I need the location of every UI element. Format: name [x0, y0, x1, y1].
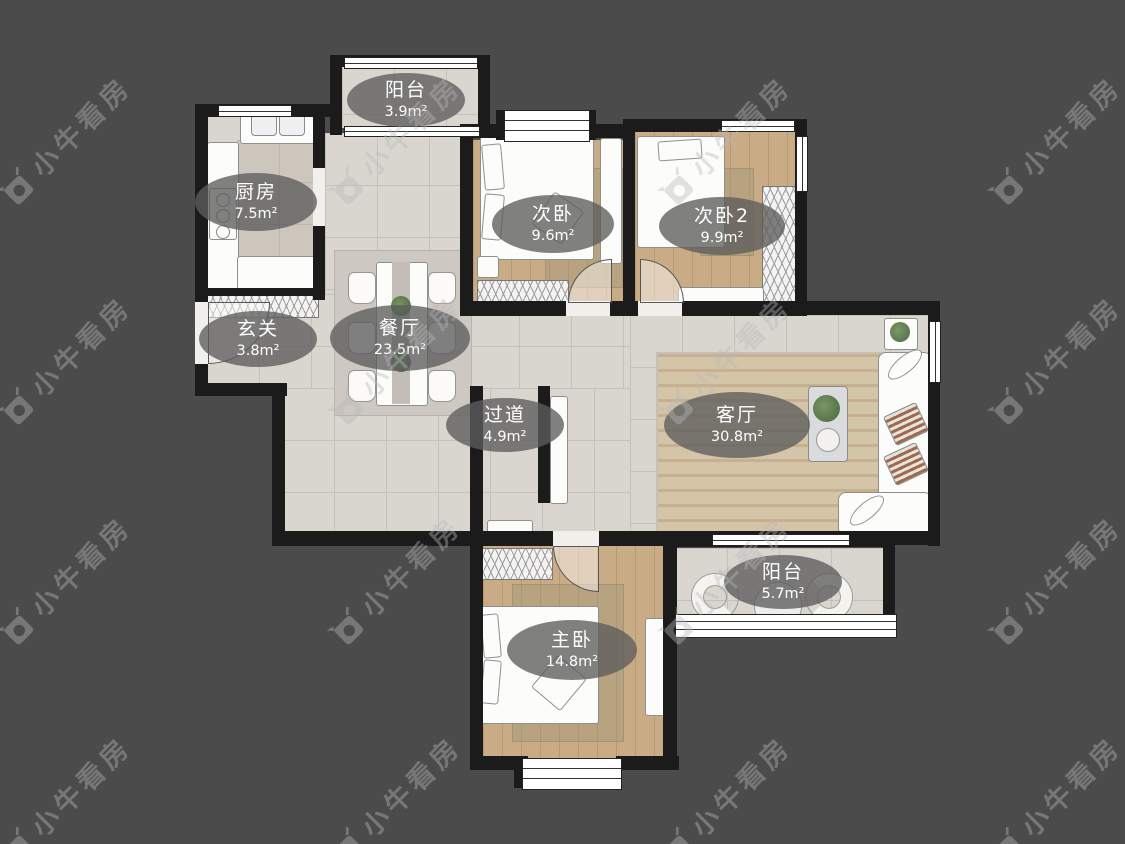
bull-camera-icon	[983, 824, 1031, 844]
room-label-entry: 玄关3.8m²	[199, 311, 317, 367]
watermark: 小牛看房	[0, 66, 139, 214]
bedroom3-pillow	[657, 138, 702, 161]
window-balcony-top	[344, 57, 478, 69]
wall	[663, 531, 677, 770]
room-label-living: 客厅30.8m²	[664, 392, 810, 458]
watermark: 小牛看房	[981, 66, 1125, 214]
bay-window-master	[522, 758, 622, 790]
living-plant	[890, 322, 910, 342]
watermark: 小牛看房	[981, 506, 1125, 654]
room-label-balcony-bottom: 阳台5.7m²	[724, 555, 842, 609]
watermark: 小牛看房	[321, 726, 469, 844]
bull-camera-icon	[983, 384, 1031, 432]
window-bedroom3	[721, 120, 795, 132]
floorplan-canvas: 阳台3.9m² 厨房7.5m² 次卧9.6m² 次卧29.9m² 玄关3.8m²…	[0, 0, 1125, 844]
master-door-opening	[553, 531, 599, 546]
window-cap	[496, 110, 504, 140]
room-label-kitchen: 厨房7.5m²	[195, 173, 317, 231]
dining-chair	[428, 370, 456, 402]
bedroom2-door-opening	[566, 301, 610, 316]
master-wardrobe	[477, 548, 553, 580]
room-label-balcony-top: 阳台3.9m²	[347, 73, 465, 127]
wall	[195, 288, 325, 296]
window-bedroom3-right	[796, 136, 808, 192]
wall	[272, 383, 285, 545]
bull-camera-icon	[983, 604, 1031, 652]
wall	[460, 124, 473, 316]
bedroom3-wardrobe	[762, 186, 797, 308]
window-kitchen	[218, 105, 292, 117]
bedroom3-door-opening	[638, 301, 682, 316]
bull-camera-icon	[323, 824, 371, 844]
wall	[478, 55, 490, 135]
window-balcony-bottom	[675, 614, 897, 638]
bull-camera-icon	[0, 604, 41, 652]
room-label-dining: 餐厅23.5m²	[330, 305, 470, 371]
watermark: 小牛看房	[0, 506, 139, 654]
dining-chair	[428, 272, 456, 304]
room-label-bedroom-2: 次卧9.6m²	[492, 195, 614, 253]
wall	[623, 119, 635, 316]
window-living-right	[929, 321, 941, 383]
master-pillow	[480, 659, 502, 704]
dining-chair	[348, 272, 376, 304]
room-label-hallway: 过道4.9m²	[446, 398, 564, 452]
bull-camera-icon	[653, 824, 701, 844]
room-label-master: 主卧14.8m²	[507, 620, 637, 680]
coffee-table-tray	[816, 428, 840, 452]
bull-camera-icon	[0, 384, 41, 432]
bedroom2-side-cabinet	[600, 138, 622, 264]
watermark: 小牛看房	[0, 286, 139, 434]
window-balcony-top-inner	[344, 126, 480, 137]
master-pillow	[480, 613, 502, 658]
wall	[470, 531, 483, 770]
bay-window-bedroom2	[504, 110, 590, 142]
slider-balcony-bottom	[712, 534, 850, 546]
watermark: 小牛看房	[0, 726, 139, 844]
bedroom2-nightstand	[477, 256, 499, 278]
wall	[272, 531, 484, 546]
watermark: 小牛看房	[981, 726, 1125, 844]
dining-chair	[348, 370, 376, 402]
wall	[330, 55, 342, 135]
bedroom2-pillow	[481, 143, 505, 191]
wall	[795, 301, 940, 315]
bull-camera-icon	[983, 164, 1031, 212]
bull-camera-icon	[323, 604, 371, 652]
watermark: 小牛看房	[981, 286, 1125, 434]
room-label-bedroom-3: 次卧29.9m²	[659, 197, 785, 255]
bull-camera-icon	[0, 164, 41, 212]
coffee-table-plant	[813, 395, 840, 422]
bull-camera-icon	[0, 824, 41, 844]
